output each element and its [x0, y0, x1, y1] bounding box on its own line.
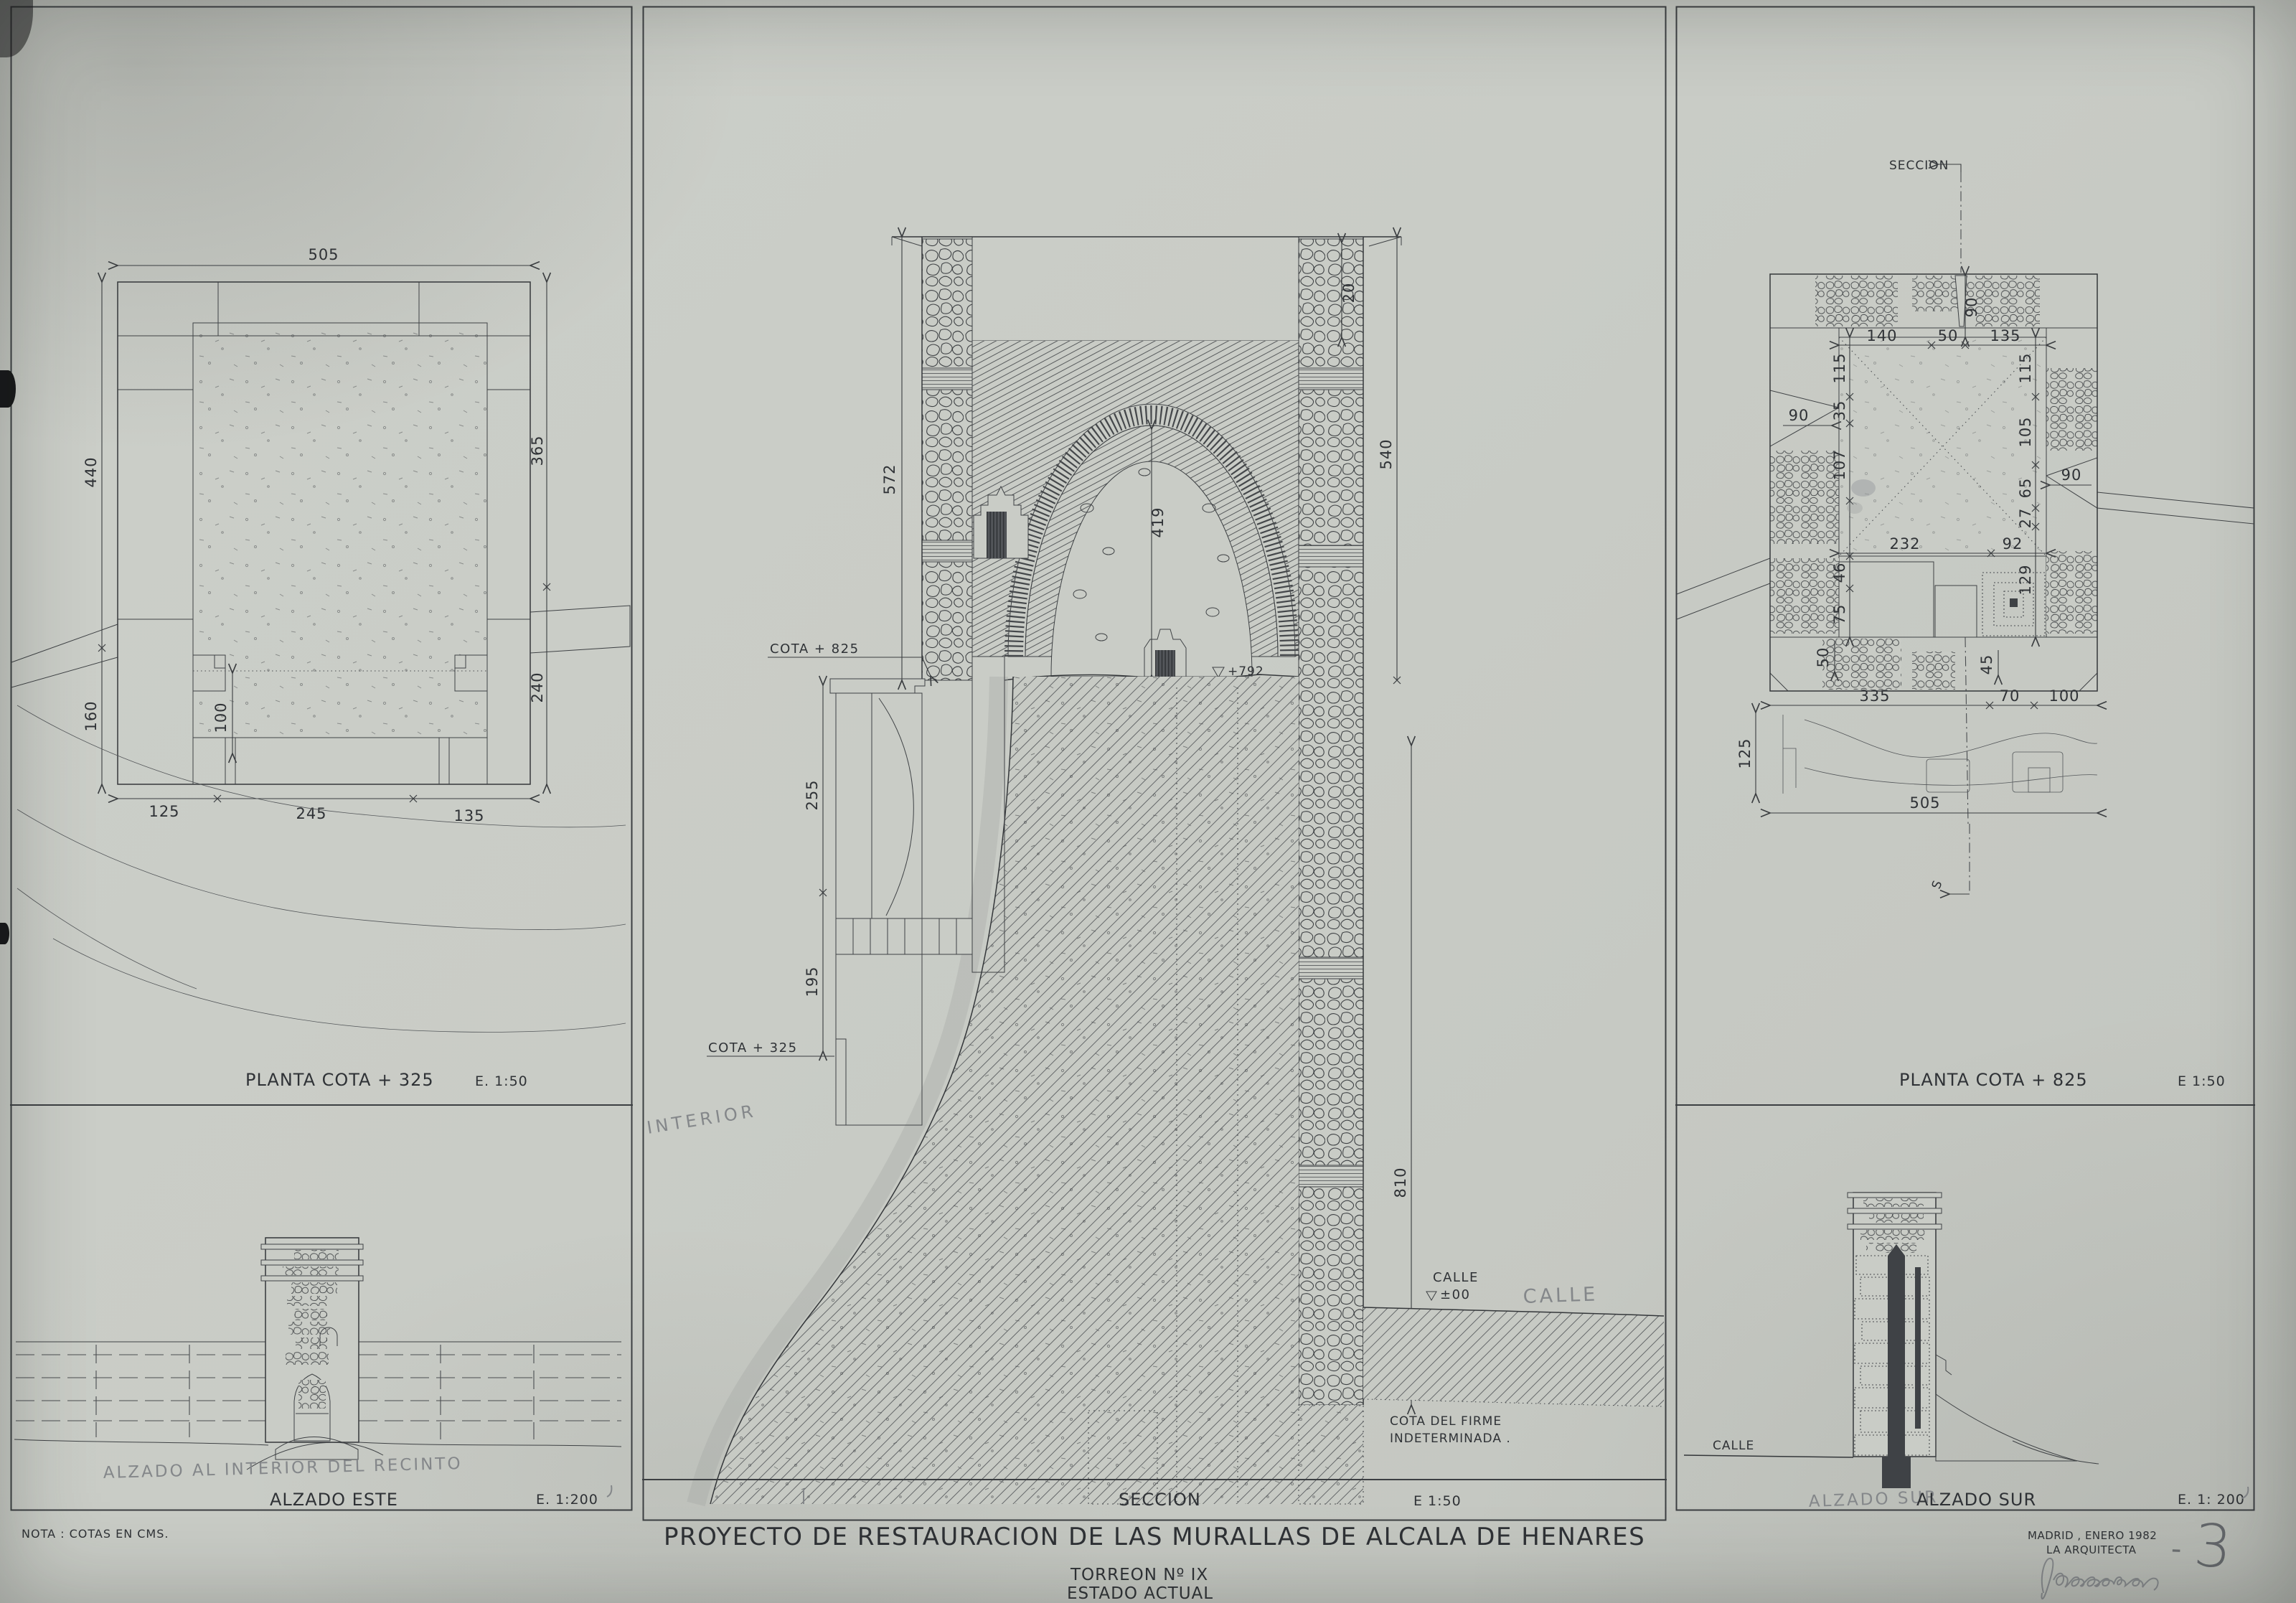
pencil-interior: INTERIOR [646, 1101, 758, 1138]
dim-825-t1: 140 [1866, 327, 1897, 344]
dim-825-l1: 115 [1831, 352, 1848, 383]
project-title: PROYECTO DE RESTAURACION DE LAS MURALLAS… [664, 1523, 1645, 1551]
label-firme-1: COTA DEL FIRME [1390, 1414, 1502, 1429]
dim-825-r4: 27 [2017, 508, 2034, 529]
dim-plan325-inner: 100 [212, 702, 230, 733]
signature [2036, 1550, 2187, 1603]
alzado-este-scale: E. 1:200 [536, 1492, 598, 1508]
dim-825-stair: 50 [1815, 647, 1832, 668]
dim-seccion-right-lower: 810 [1392, 1167, 1409, 1198]
ink-stain-1 [0, 370, 16, 408]
section-cut-label: SECCION [1889, 159, 1949, 173]
pencil-calle: CALLE [1523, 1283, 1598, 1308]
dim-825-r5: 129 [2017, 564, 2034, 595]
dim-plan325-left: 440 [83, 456, 100, 487]
label-calle: CALLE [1433, 1270, 1479, 1285]
alzado-sur-title: ALZADO SUR [1916, 1490, 2036, 1510]
dim-825-total: 505 [1909, 794, 1940, 812]
dim-plan325-top: 505 [308, 246, 339, 263]
dim-plan325-right: 365 [529, 435, 546, 466]
dim-plan325-b3: 135 [453, 807, 484, 824]
wall-alignment-right [530, 606, 630, 653]
dim-825-b1: 335 [1859, 687, 1890, 705]
project-state: ESTADO ACTUAL [1067, 1584, 1213, 1603]
alzado-este-title: ALZADO ESTE [270, 1490, 398, 1510]
label-firme-2: INDETERMINADA . [1390, 1432, 1511, 1446]
sheet-number: 3 [2192, 1511, 2234, 1581]
dim-ret-upper: 255 [804, 779, 821, 810]
alzado-sur-drawing: CALLE [1684, 1193, 2099, 1488]
dim-825-l-emb: 90 [1789, 407, 1810, 424]
dim-seccion-axis: 419 [1149, 507, 1167, 537]
alzado-este-pencil-note: ALZADO AL INTERIOR DEL RECINTO [103, 1454, 462, 1482]
dim-825-r1: 115 [2017, 352, 2034, 383]
level-calle: ±00 [1440, 1287, 1471, 1302]
dim-825-spiral: 45 [1978, 654, 1995, 675]
seccion-scale: E 1:50 [1413, 1493, 1462, 1509]
label-cota-825: COTA + 825 [770, 641, 860, 657]
dim-seccion-left: 572 [881, 464, 898, 494]
dim-ret-lower: 195 [804, 966, 821, 997]
plan-325-title: PLANTA COTA + 325 [245, 1070, 434, 1090]
seccion-title: SECCION [1119, 1490, 1201, 1510]
dim-825-b2: 70 [2000, 687, 2020, 705]
dim-825-l3: 107 [1831, 449, 1848, 480]
plan-325-scale: E. 1:50 [475, 1073, 528, 1089]
alzado-este-drawing [14, 1238, 621, 1470]
plan-825-title: PLANTA COTA + 825 [1899, 1070, 2088, 1090]
label-calle-sur: CALLE [1713, 1439, 1754, 1453]
scanned-architectural-sheet: { "colors": {"paper": "#c9ccc6", "ink": … [0, 0, 2296, 1603]
dim-825-t2: 50 [1938, 327, 1959, 344]
alzado-sur-scale: E. 1: 200 [2178, 1492, 2245, 1508]
dim-825-top-offset: 90 [1963, 297, 1980, 318]
smudge [1851, 479, 1876, 497]
panel-seccion: 419 +792 [642, 6, 1667, 1521]
dim-825-l4: 46 [1831, 563, 1848, 583]
dim-plan325-right-lower: 240 [529, 672, 546, 702]
street-ground [1363, 1307, 1664, 1406]
dim-825-r3: 65 [2017, 478, 2034, 499]
note-cotas: NOTA : COTAS EN CMS. [22, 1527, 169, 1541]
slope-mound [1936, 1394, 2077, 1461]
dim-825-l5: 75 [1831, 604, 1848, 625]
dim-825-terrain: 125 [1736, 738, 1754, 768]
dim-plan325-b2: 245 [296, 805, 326, 822]
dim-825-b3: 100 [2048, 687, 2079, 705]
dim-825-r2: 105 [2017, 416, 2034, 447]
ink-stain-2 [0, 923, 9, 944]
dim-825-r-emb: 90 [2061, 466, 2082, 484]
sheet-number-dash: - [2170, 1533, 2182, 1566]
dim-plan325-b1: 125 [149, 803, 179, 820]
terrain-contours [17, 705, 626, 1032]
plan-825-scale: E 1:50 [2178, 1073, 2226, 1089]
plan-325-drawing: 505 440 160 365 240 125 245 135 100 [11, 246, 630, 1032]
project-subtitle: TORREON Nº IX [1071, 1566, 1208, 1584]
stair [1935, 586, 1977, 637]
dim-825-m1: 232 [1889, 535, 1920, 553]
seccion-drawing: 419 +792 [646, 237, 1664, 1504]
dim-825-t3: 135 [1990, 327, 2020, 344]
dark-buttress [1888, 1244, 1905, 1457]
pencil-mark [607, 1485, 611, 1497]
dim-seccion-right: 540 [1378, 438, 1395, 469]
dim-plan325-left-lower: 160 [83, 700, 100, 731]
place-date: MADRID , ENERO 1982 [2028, 1529, 2157, 1542]
label-cota-325: COTA + 325 [708, 1040, 798, 1056]
terrain-sketch [1783, 715, 2097, 794]
dim-825-l2: 35 [1831, 400, 1848, 421]
section-end-label: S [1929, 878, 1946, 891]
panel-plan-825-and-alzado-sur: SECCION S [1675, 6, 2255, 1511]
dim-seccion-top: 20 [1340, 283, 1358, 304]
plan-825-drawing: 90 140 50 135 115 35 107 46 75 90 115 10… [1677, 274, 2254, 813]
dim-825-m2: 92 [2003, 535, 2023, 553]
panel-plan-325-and-alzado-este: 505 440 160 365 240 125 245 135 100 PLAN… [10, 6, 633, 1511]
